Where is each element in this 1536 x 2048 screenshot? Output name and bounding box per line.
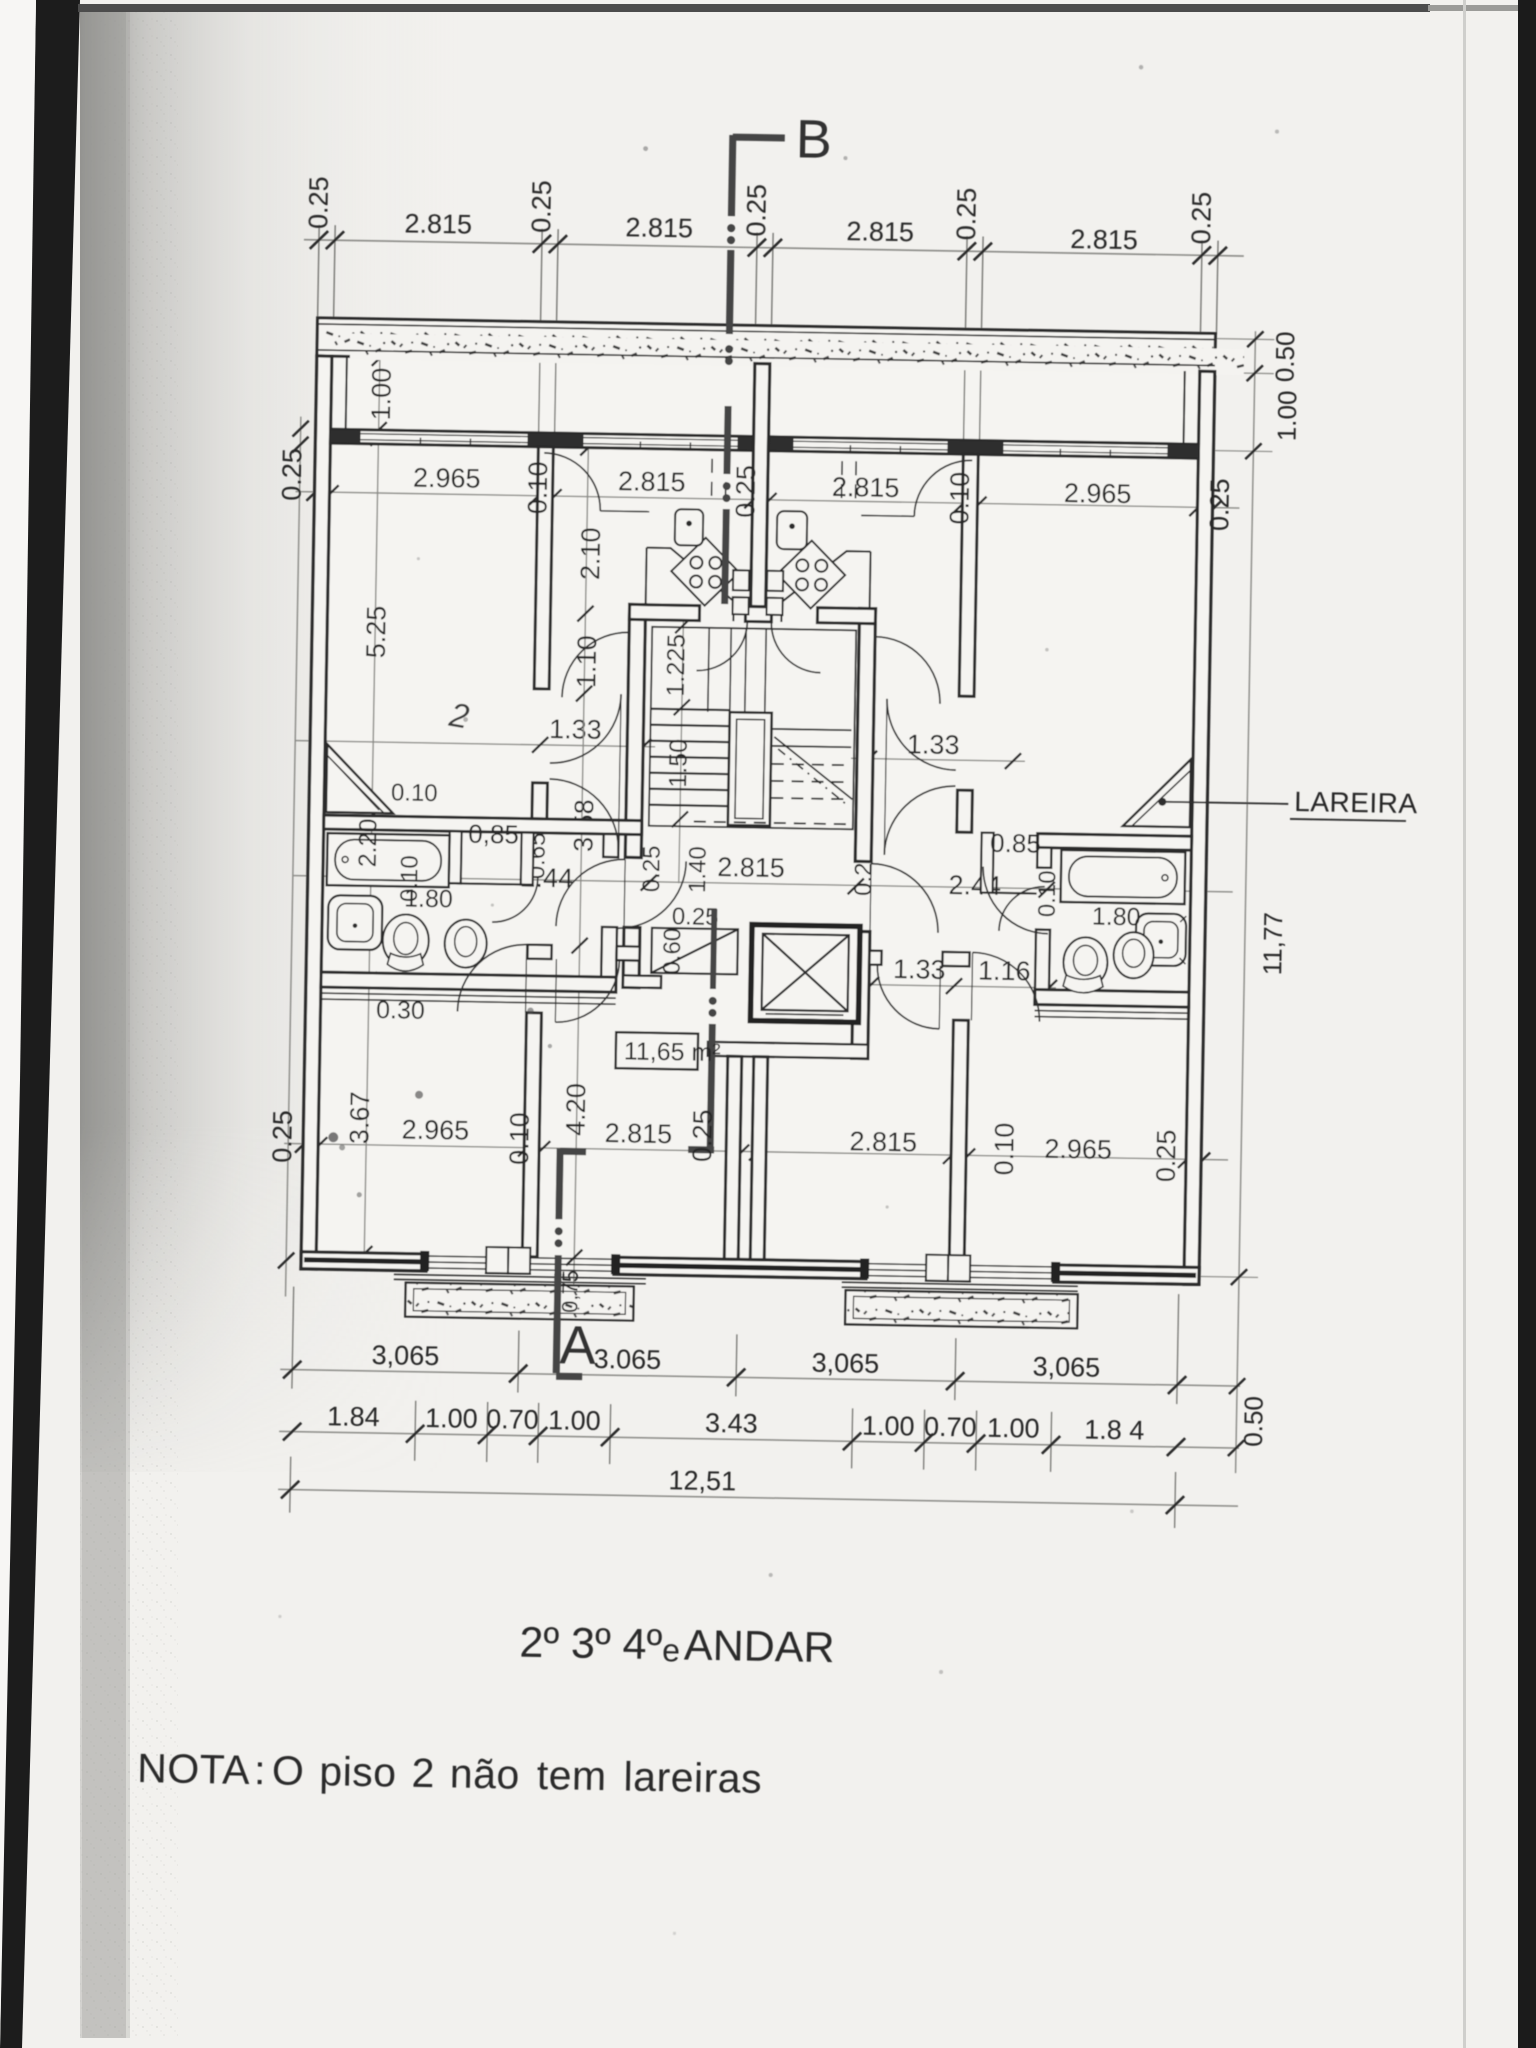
svg-text:0.60: 0.60: [659, 928, 687, 975]
svg-text:1.00: 1.00: [366, 367, 397, 420]
svg-text:LAREIRA: LAREIRA: [1294, 786, 1418, 819]
svg-text:0.70: 0.70: [924, 1412, 977, 1443]
svg-text:2.815: 2.815: [849, 1126, 917, 1157]
svg-text:0.10: 0.10: [391, 779, 438, 807]
svg-text:0.25: 0.25: [741, 184, 772, 237]
svg-text:0.25: 0.25: [951, 187, 982, 240]
svg-text:3,065: 3,065: [811, 1348, 879, 1379]
svg-text:0,75: 0,75: [557, 1270, 583, 1313]
svg-text:1.00: 1.00: [425, 1403, 478, 1434]
svg-text:0.10: 0.10: [522, 461, 553, 514]
svg-text:2.10: 2.10: [575, 527, 606, 580]
svg-text:0.10: 0.10: [396, 855, 424, 902]
svg-text:0.50: 0.50: [1269, 331, 1300, 382]
svg-text:0,85: 0,85: [468, 819, 519, 850]
svg-text:0.10: 0.10: [504, 1112, 535, 1165]
svg-text:2.815: 2.815: [604, 1118, 672, 1149]
svg-text:0.25: 0.25: [1204, 478, 1235, 531]
svg-text:B: B: [795, 109, 832, 170]
svg-text:0.25: 0.25: [303, 176, 334, 229]
svg-text:2.815: 2.815: [717, 852, 785, 883]
svg-text:1.8 4: 1.8 4: [1084, 1414, 1145, 1445]
svg-text:3.67: 3.67: [344, 1091, 375, 1144]
svg-text:0.25: 0.25: [730, 465, 761, 518]
svg-text:4.20: 4.20: [560, 1083, 591, 1136]
svg-text:0.10: 0.10: [944, 472, 975, 525]
svg-text:3,065: 3,065: [371, 1340, 439, 1371]
svg-text:1.33: 1.33: [893, 954, 946, 985]
svg-text:0.25: 0.25: [1186, 191, 1217, 244]
svg-text:2.815: 2.815: [404, 208, 472, 239]
svg-text:5.25: 5.25: [361, 605, 392, 658]
svg-text:0.70: 0.70: [486, 1404, 539, 1435]
svg-text:0.25: 0.25: [526, 180, 557, 233]
svg-text:2.815: 2.815: [625, 212, 693, 243]
svg-text:1.80: 1.80: [1092, 903, 1141, 932]
svg-text:2.965: 2.965: [1064, 478, 1132, 509]
svg-text:0.85: 0.85: [990, 828, 1041, 859]
svg-text:2.20: 2.20: [354, 818, 383, 867]
svg-text:1.225: 1.225: [662, 634, 691, 697]
svg-text:1.10: 1.10: [571, 635, 602, 688]
svg-text:0.50: 0.50: [1238, 1396, 1269, 1447]
svg-text:0.25: 0.25: [277, 448, 308, 501]
svg-text:1.00: 1.00: [1271, 390, 1302, 441]
svg-text:2.815: 2.815: [846, 216, 914, 247]
svg-text:1.50: 1.50: [664, 739, 693, 788]
svg-text:0.10: 0.10: [1034, 870, 1062, 917]
svg-text:0.25: 0.25: [687, 1109, 718, 1162]
svg-text:2.965: 2.965: [1044, 1134, 1112, 1165]
svg-text:1.00: 1.00: [548, 1405, 601, 1436]
svg-text:0.10: 0.10: [989, 1122, 1020, 1175]
svg-text:1.40: 1.40: [684, 846, 712, 893]
svg-text:2.815: 2.815: [618, 466, 686, 497]
svg-text:1.00: 1.00: [987, 1413, 1040, 1444]
svg-text:A: A: [559, 1315, 596, 1376]
svg-text:11,65 m²: 11,65 m²: [624, 1037, 721, 1067]
svg-text:3.43: 3.43: [705, 1408, 758, 1439]
svg-text:0.25: 0.25: [1151, 1129, 1182, 1182]
svg-text:0.25: 0.25: [267, 1110, 298, 1163]
svg-text:1.33: 1.33: [549, 714, 602, 745]
svg-text:11,77: 11,77: [1257, 912, 1288, 976]
svg-text:12,51: 12,51: [668, 1465, 736, 1496]
svg-text:2.815: 2.815: [1070, 224, 1138, 255]
svg-text:1.84: 1.84: [327, 1401, 380, 1432]
svg-text:3.065: 3.065: [593, 1344, 661, 1375]
svg-text:2.965: 2.965: [413, 463, 481, 494]
svg-text:3,065: 3,065: [1032, 1352, 1100, 1383]
svg-text:2.965: 2.965: [401, 1114, 469, 1145]
svg-text:1.00: 1.00: [862, 1411, 915, 1442]
